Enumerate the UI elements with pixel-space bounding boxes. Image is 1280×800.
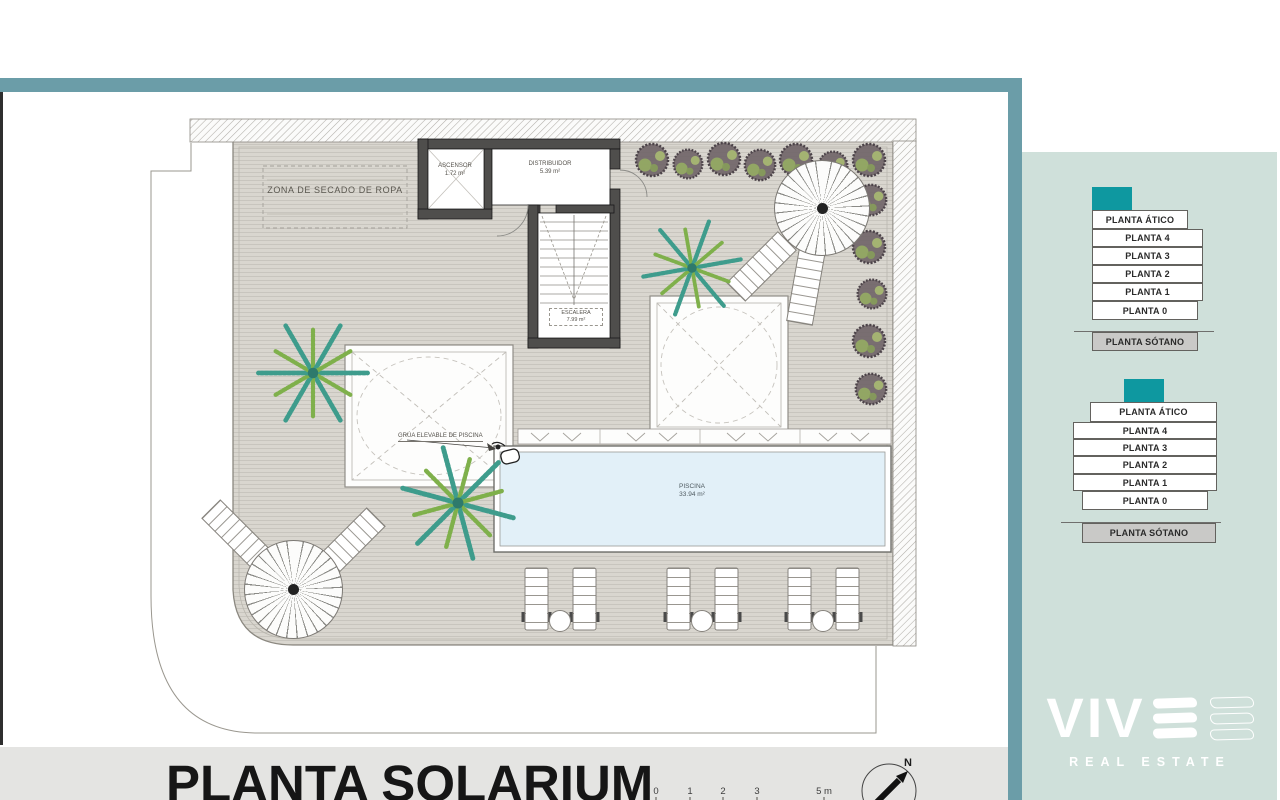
side-accent-strip [1008, 78, 1022, 800]
floor-planta-2[interactable]: PLANTA 2 [1073, 456, 1217, 474]
north-letter: N [904, 757, 912, 769]
floor-planta-3[interactable]: PLANTA 3 [1092, 247, 1203, 265]
top-wall-hatch [190, 119, 916, 142]
pool-name: PISCINA [640, 483, 744, 491]
floor-planta-4[interactable]: PLANTA 4 [1092, 229, 1203, 247]
page-title: PLANTA SOLARIUM [166, 754, 653, 800]
floor-planta-1[interactable]: PLANTA 1 [1092, 283, 1203, 301]
stair-treads [540, 215, 608, 305]
door-swings [497, 170, 647, 236]
sheet-left-edge [0, 92, 3, 745]
elevator-cross [429, 150, 483, 208]
floor-selector-upper: PLANTA ÁTICO PLANTA 4 PLANTA 3 PLANTA 2 … [1082, 185, 1232, 355]
top-accent-bar [0, 78, 1022, 92]
pool-label: PISCINA 33.94 m² [640, 483, 744, 499]
hall-label: DISTRIBUIDOR 5.39 m² [504, 161, 596, 176]
elevator-area: 1.72 m² [424, 171, 486, 179]
elevator-label: ASCENSOR 1.72 m² [424, 163, 486, 178]
hall-area: 5.39 m² [504, 169, 596, 177]
floor-planta-2[interactable]: PLANTA 2 [1092, 265, 1203, 283]
scale-tick-1: 1 [677, 786, 703, 797]
scale-tick-0: 0 [643, 786, 669, 797]
palm-trees [258, 217, 748, 565]
right-wall-hatch [893, 141, 916, 646]
pool-edge-strip [518, 429, 891, 444]
spiral-stair-bottom [244, 540, 343, 639]
brand-logo: VIV REAL ESTATE [1026, 690, 1274, 769]
floor-planta-atico[interactable]: PLANTA ÁTICO [1092, 210, 1188, 229]
brand-tagline: REAL ESTATE [1026, 755, 1274, 769]
floor-planta-4[interactable]: PLANTA 4 [1073, 422, 1217, 439]
current-floor-indicator [1092, 187, 1132, 210]
current-floor-indicator [1124, 379, 1164, 402]
building-outline [151, 143, 876, 733]
brand-outline-bars-icon [1210, 697, 1254, 740]
pool-lift-icon [407, 440, 520, 465]
brand-letters: VIV [1046, 690, 1145, 746]
floor-planta-sotano[interactable]: PLANTA SÓTANO [1092, 332, 1198, 351]
page: ZONA DE SECADO DE ROPA ASCENSOR 1.72 m² … [0, 0, 1280, 800]
skylight-right [650, 296, 788, 434]
pool-area: 33.94 m² [640, 491, 744, 499]
hall-name: DISTRIBUIDOR [504, 161, 596, 169]
floor-planta-0[interactable]: PLANTA 0 [1082, 491, 1208, 510]
drying-zone-label: ZONA DE SECADO DE ROPA [260, 185, 410, 196]
floor-planta-3[interactable]: PLANTA 3 [1073, 439, 1217, 456]
stairs-label: ESCALERA 7.99 m² [549, 308, 603, 326]
skylight-left [345, 345, 513, 487]
spiral-stair-top [774, 160, 870, 256]
scale-tick-2: 2 [710, 786, 736, 797]
floor-selector-lower: PLANTA ÁTICO PLANTA 4 PLANTA 3 PLANTA 2 … [1067, 377, 1232, 547]
brand-e-bars-icon [1153, 698, 1197, 738]
sun-loungers [522, 568, 863, 632]
floor-planta-1[interactable]: PLANTA 1 [1073, 474, 1217, 491]
scale-tick-5m: 5 m [811, 786, 837, 797]
stairs-area: 7.99 m² [550, 317, 602, 324]
drying-zone-outline [263, 166, 407, 228]
stair-flights [202, 232, 825, 577]
floor-planta-0[interactable]: PLANTA 0 [1092, 301, 1198, 320]
scale-tick-3: 3 [744, 786, 770, 797]
floor-planta-sotano[interactable]: PLANTA SÓTANO [1082, 523, 1216, 543]
stairs-name: ESCALERA [550, 310, 602, 317]
elevator-name: ASCENSOR [424, 163, 486, 171]
floor-planta-atico[interactable]: PLANTA ÁTICO [1090, 402, 1217, 422]
pool-lift-label: GRÚA ELEVABLE DE PISCINA [398, 433, 483, 442]
